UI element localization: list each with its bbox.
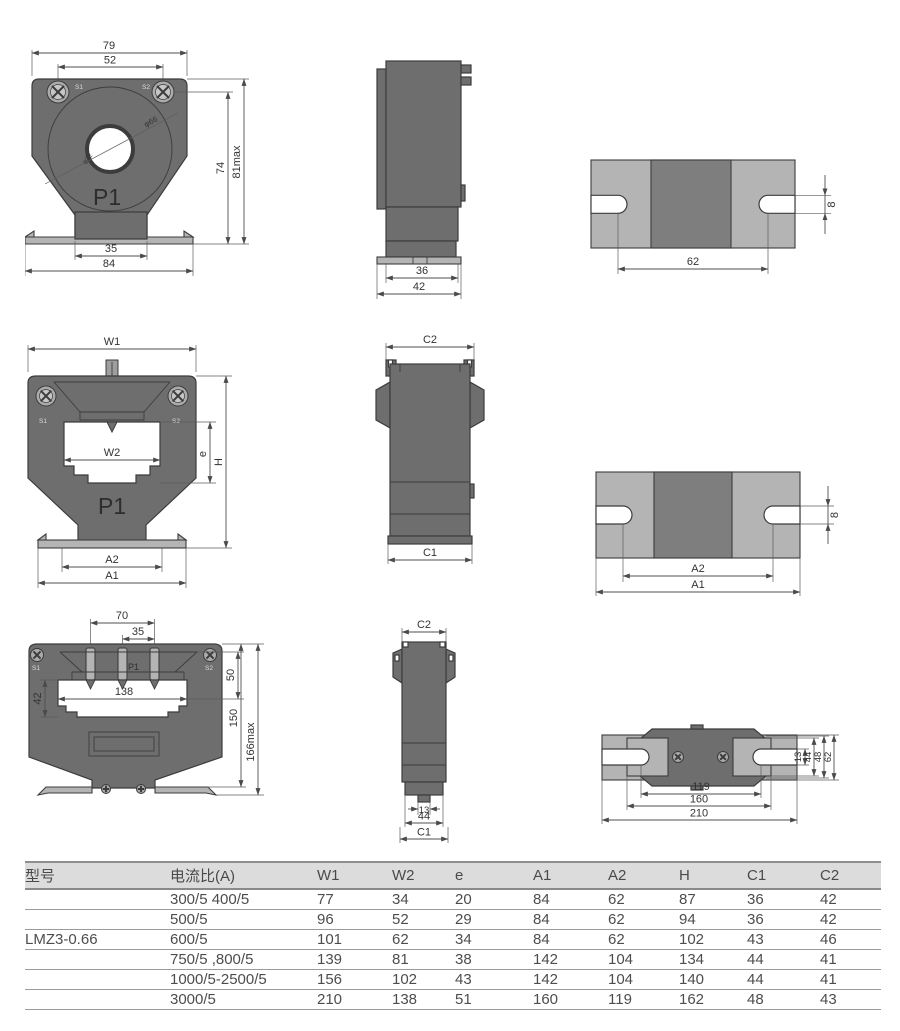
a1-cell: 142 (533, 951, 608, 968)
side-clip (461, 185, 465, 201)
clamp-post (150, 648, 159, 680)
dim-label-160: 160 (690, 794, 708, 806)
table-row: 300/5 400/5 77 34 20 84 62 87 36 42 (25, 890, 881, 910)
col-header-model: 型号 (25, 865, 170, 886)
drawing-large-ct-bottom-view: 13 44 48 62 119 160 210 (593, 698, 893, 858)
table-row: 750/5 ,800/5 139 81 38 142 104 134 44 41 (25, 950, 881, 970)
e-cell: 29 (455, 911, 533, 928)
transformer-body (386, 61, 461, 207)
mounting-slot-left (602, 749, 649, 765)
c1-cell: 36 (747, 911, 820, 928)
mounting-slot-right (753, 749, 797, 765)
dim-label-a2: A2 (105, 554, 118, 566)
foot-bracket-right (155, 787, 216, 795)
col-header-a2: A2 (608, 867, 679, 884)
e-cell: 43 (455, 971, 533, 988)
back-plate-edge (377, 69, 386, 209)
foot-screw-icon (102, 785, 111, 794)
col-header-e: e (455, 867, 533, 884)
dim-label-42: 42 (32, 692, 44, 704)
e-cell: 38 (455, 951, 533, 968)
w1-cell: 156 (317, 971, 392, 988)
table-row: 500/5 96 52 29 84 62 94 36 42 (25, 910, 881, 930)
a1-cell: 160 (533, 991, 608, 1008)
ratio-cell: 3000/5 (170, 991, 317, 1008)
c2-cell: 41 (820, 951, 881, 968)
drawing-large-ct-front-view: S1 S2 P1 70 35 42 138 50 150 166max (12, 602, 282, 857)
mounting-slot-left (591, 195, 627, 213)
dim-label-79: 79 (103, 40, 115, 52)
dim-label-84: 84 (103, 258, 115, 270)
foot-flange-left (25, 231, 34, 237)
dim-label-119: 119 (692, 781, 710, 793)
base-screw-icon (672, 751, 683, 762)
ratio-cell: 1000/5-2500/5 (170, 971, 317, 988)
col-header-ratio: 电流比(A) (170, 865, 317, 886)
dim-label-166max: 166max (245, 722, 257, 762)
h-cell: 140 (679, 971, 747, 988)
side-wing-left (376, 382, 390, 428)
col-header-c2: C2 (820, 867, 881, 884)
ct-datasheet-page: { "views": { "small_front": { "dims": {"… (0, 0, 900, 1031)
terminal-tab-icon (461, 65, 471, 73)
label-p1: P1 (93, 184, 121, 210)
transformer-body (402, 642, 446, 782)
w2-cell: 62 (392, 931, 455, 948)
ratio-cell: 300/5 400/5 (170, 891, 317, 908)
dim-label-42: 42 (413, 281, 425, 293)
mounting-slot-right (759, 195, 795, 213)
dim-label-210: 210 (690, 808, 708, 820)
w1-cell: 139 (317, 951, 392, 968)
mounting-slot-left (596, 506, 632, 524)
w2-cell: 34 (392, 891, 455, 908)
mounting-foot (377, 257, 461, 264)
drawing-mid-ct-front-view: S1 S2 P1 W1 W2 e H A2 A1 (18, 332, 270, 590)
dim-label-h: H (213, 458, 225, 466)
dim-label-e: e (197, 451, 209, 457)
side-wing-right (470, 382, 484, 428)
dim-label-35: 35 (105, 243, 117, 255)
w1-cell: 210 (317, 991, 392, 1008)
a2-cell: 62 (608, 931, 679, 948)
body-mid-section (386, 207, 458, 241)
dim-label-8: 8 (829, 512, 841, 518)
label-p1: P1 (98, 493, 126, 519)
base-strip (388, 536, 472, 544)
dim-label-c2: C2 (417, 619, 431, 631)
h-cell: 134 (679, 951, 747, 968)
w2-cell: 102 (392, 971, 455, 988)
label-s1: S1 (39, 418, 47, 425)
a2-cell: 62 (608, 911, 679, 928)
dim-label-62: 62 (823, 752, 834, 763)
h-cell: 94 (679, 911, 747, 928)
col-header-a1: A1 (533, 867, 608, 884)
terminal-tab-icon (461, 77, 471, 85)
ratio-cell: 600/5 (170, 931, 317, 948)
model-cell: LMZ3-0.66 (25, 931, 170, 948)
c1-cell: 48 (747, 991, 820, 1008)
h-cell: 102 (679, 931, 747, 948)
dim-label-138: 138 (115, 686, 133, 698)
e-cell: 51 (455, 991, 533, 1008)
a2-cell: 119 (608, 991, 679, 1008)
transformer-body (390, 364, 470, 536)
c2-cell: 42 (820, 911, 881, 928)
c1-cell: 36 (747, 891, 820, 908)
drawing-large-ct-side-view: C2 13 44 C1 (378, 605, 493, 857)
foot-flange-right (178, 534, 186, 540)
a1-cell: 84 (533, 891, 608, 908)
stem (75, 212, 147, 239)
w2-cell: 138 (392, 991, 455, 1008)
dim-label-52: 52 (104, 55, 116, 67)
dim-label-50: 50 (225, 669, 237, 681)
table-row: 3000/5 210 138 51 160 119 162 48 43 (25, 990, 881, 1010)
foot-flange-right (184, 231, 193, 237)
dim-label-a2: A2 (691, 563, 704, 575)
drawing-small-ct-bottom-view: 62 8 (583, 148, 845, 288)
clamp-post (118, 648, 127, 680)
dim-label-8: 8 (826, 201, 838, 207)
a2-cell: 104 (608, 951, 679, 968)
a1-cell: 84 (533, 911, 608, 928)
base-screw-icon (717, 751, 728, 762)
label-p1: P1 (128, 662, 139, 672)
dim-label-35: 35 (132, 626, 144, 638)
table-row: LMZ3-0.66 600/5 101 62 34 84 62 102 43 4… (25, 930, 881, 950)
dimension-lines (91, 619, 155, 646)
label-s2: S2 (172, 418, 180, 425)
col-header-h: H (679, 867, 747, 884)
w2-cell: 52 (392, 911, 455, 928)
c2-cell: 42 (820, 891, 881, 908)
dim-label-c2: C2 (423, 334, 437, 346)
label-s2: S2 (142, 84, 150, 91)
a1-cell: 84 (533, 931, 608, 948)
dim-label-74: 74 (215, 162, 227, 174)
label-s1: S1 (75, 84, 83, 91)
drawing-mid-ct-side-view: C2 C1 (366, 332, 496, 578)
side-wing-left (393, 649, 402, 683)
label-s1: S1 (32, 665, 40, 672)
dim-label-a1: A1 (691, 579, 704, 591)
top-notch-right (440, 642, 445, 647)
a2-cell: 104 (608, 971, 679, 988)
body-footprint (654, 472, 732, 558)
w1-cell: 101 (317, 931, 392, 948)
e-cell: 34 (455, 931, 533, 948)
ratio-cell: 500/5 (170, 911, 317, 928)
drawing-mid-ct-bottom-view: 8 A2 A1 (588, 462, 846, 598)
dim-label-w2: W2 (104, 447, 121, 459)
spec-table: 型号 电流比(A) W1 W2 e A1 A2 H C1 C2 300/5 40… (25, 861, 881, 1010)
dim-label-c1: C1 (423, 547, 437, 559)
dim-label-a1: A1 (105, 570, 118, 582)
table-row: 1000/5-2500/5 156 102 43 142 104 140 44 … (25, 970, 881, 990)
c2-cell: 41 (820, 971, 881, 988)
c1-cell: 44 (747, 971, 820, 988)
label-s2: S2 (205, 665, 213, 672)
w1-cell: 77 (317, 891, 392, 908)
dim-label-w1: W1 (104, 336, 121, 348)
spec-table-header-row: 型号 电流比(A) W1 W2 e A1 A2 H C1 C2 (25, 861, 881, 890)
c1-cell: 44 (747, 951, 820, 968)
w2-cell: 81 (392, 951, 455, 968)
a2-cell: 62 (608, 891, 679, 908)
clamp-post (86, 648, 95, 680)
h-cell: 162 (679, 991, 747, 1008)
top-notch-left (403, 642, 408, 647)
wing-hole-left (395, 655, 399, 661)
dim-label-c1: C1 (417, 827, 431, 839)
ratio-cell: 750/5 ,800/5 (170, 951, 317, 968)
e-cell: 20 (455, 891, 533, 908)
top-tab (691, 725, 703, 729)
c2-cell: 43 (820, 991, 881, 1008)
dim-label-81max: 81max (231, 145, 243, 179)
mounting-foot (38, 540, 186, 548)
w1-cell: 96 (317, 911, 392, 928)
foot-flange-left (38, 534, 46, 540)
col-header-w1: W1 (317, 867, 392, 884)
side-wing-right (446, 649, 455, 683)
col-header-w2: W2 (392, 867, 455, 884)
dim-label-36: 36 (416, 265, 428, 277)
body-lower-section (405, 782, 443, 795)
wing-hole-right (449, 655, 453, 661)
a1-cell: 142 (533, 971, 608, 988)
c2-cell: 46 (820, 931, 881, 948)
foot-bracket-left (38, 787, 92, 795)
dim-label-44: 44 (418, 811, 430, 823)
drawing-small-ct-front-view: φ66 φ32 S1 S2 P1 79 52 74 81max 35 84 (25, 38, 250, 290)
dim-label-62: 62 (687, 256, 699, 268)
body-footprint (651, 160, 731, 248)
h-cell: 87 (679, 891, 747, 908)
col-header-c1: C1 (747, 867, 820, 884)
side-clip (470, 484, 474, 498)
body-lower-section (386, 241, 456, 257)
dim-label-150: 150 (228, 709, 240, 727)
terminal-screw-s1-icon (30, 648, 44, 662)
mounting-slot-right (764, 506, 800, 524)
c1-cell: 43 (747, 931, 820, 948)
foot-screw-icon (137, 785, 146, 794)
drawing-small-ct-side-view: 36 42 (363, 55, 508, 300)
terminal-screw-s2-icon (203, 648, 217, 662)
bottom-tab (418, 795, 430, 802)
dim-label-70: 70 (116, 610, 128, 622)
